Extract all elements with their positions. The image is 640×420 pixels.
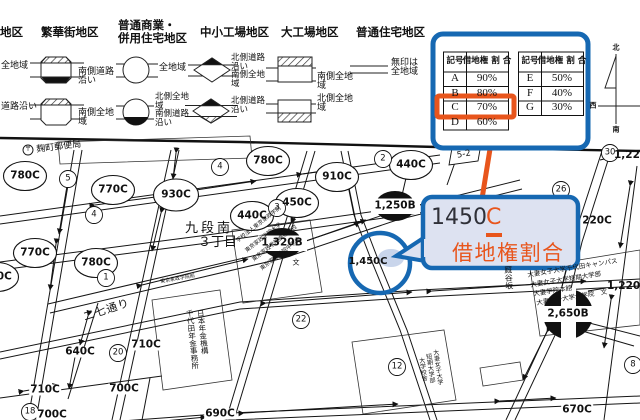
legend-title-residential: 普通住宅地区 (356, 26, 425, 38)
legend-label: 北側道路 沿い 南側全地 域 (231, 54, 265, 88)
road-value: 930C (161, 189, 191, 200)
legend-title-smallfactory: 中小工場地区 (200, 26, 269, 38)
block-number: 26 (556, 186, 567, 195)
block-number: 4 (91, 211, 96, 220)
road-value: 710C (130, 339, 162, 350)
table-cell: 80% (477, 88, 497, 100)
compass-north-label: 北 (613, 44, 620, 51)
rosenka-map-screenshot: 高度商業地区 全地域 道路沿い 繁華街地区 南側道路 沿い 南側全地 域 普通商… (0, 0, 640, 420)
road-value: 2,650B (547, 308, 588, 319)
road-value: 700C (108, 383, 140, 394)
legend-label: 北側道路 沿い (231, 97, 265, 114)
block-number: 8 (630, 361, 635, 370)
road-value: 440C (396, 159, 426, 170)
legend-label: 全地域 (159, 64, 186, 73)
block-number: 1 (103, 274, 108, 283)
table-header-ratio: 借地権 割 合 (538, 57, 586, 67)
table-cell: A (451, 73, 459, 85)
table-cell: 30% (552, 102, 572, 114)
compass-icon (598, 54, 640, 124)
legend-label: 道路沿い (1, 103, 37, 112)
block-number: 4 (217, 163, 222, 172)
block-number: 30 (605, 149, 616, 158)
table-cell: G (526, 102, 534, 114)
road-value: 670C (561, 404, 593, 415)
road-value: 770C (98, 184, 128, 195)
road-value: 780C (81, 257, 111, 268)
road-value: 1,250B (374, 200, 415, 211)
table-cell: D (451, 117, 459, 129)
table-cell: E (527, 73, 534, 85)
road-value: 640C (64, 346, 96, 357)
street-name-slope: 厩谷坂 (503, 265, 513, 290)
legend-label: 北側全地 域 南側道路 沿い (155, 93, 189, 127)
compass-west-label: 西 (590, 102, 597, 109)
block-number: 5 (65, 175, 70, 184)
post-symbol: 〒 (25, 147, 31, 153)
table-cell-highlighted: 70% (477, 102, 497, 114)
road-value: 710C (29, 384, 61, 395)
callout-label: 借地権割合 (452, 242, 565, 264)
legend-label: 南側全地 域 (317, 73, 353, 92)
legend-label: 無印は 全地域 (391, 59, 418, 78)
road-value: 450C (282, 197, 312, 208)
road-value-highlighted: 1,450C (349, 257, 388, 268)
table-header-symbol: 記号 (521, 57, 538, 67)
symbol-underline (486, 233, 502, 237)
table-cell: 60% (477, 117, 497, 129)
block-number: 18 (25, 408, 36, 417)
table-cell: F (527, 88, 533, 100)
block-number: 12 (392, 363, 403, 372)
table-cell: 90% (477, 73, 497, 85)
block-number: 20 (113, 349, 124, 358)
legend-title-commercial: 普通商業・ 併用住宅地区 (118, 19, 187, 45)
legend-label: 全地域 (1, 62, 28, 71)
road-value: 1,220C (614, 150, 640, 161)
road-value: 780C (10, 170, 40, 181)
district-name: 九段南 (185, 222, 233, 236)
road-value: 780C (253, 155, 283, 166)
legend-label: 北側全地 域 (317, 95, 353, 114)
table-cell-highlighted: C (451, 102, 458, 114)
table-header-ratio: 借地権 割 合 (463, 57, 511, 67)
legend-title-bigfactory: 大工場地区 (281, 26, 339, 38)
table-header-symbol: 記号 (446, 57, 463, 67)
road-value: 910C (322, 171, 352, 182)
block-number: 22 (296, 316, 307, 325)
legend-label: 南側道路 沿い (78, 68, 114, 87)
road-value: 220C (582, 215, 612, 226)
legend-label: 南側全地 域 (78, 109, 114, 128)
callout-symbol: C (486, 206, 501, 229)
callout-value: 1450 (431, 206, 487, 229)
road-value: 700C (36, 409, 68, 420)
road-value: 770C (20, 247, 50, 258)
road-value: 690C (204, 408, 236, 419)
road-value: 1,220C (607, 281, 640, 292)
table-cell: 40% (552, 88, 572, 100)
table-cell: B (451, 88, 458, 100)
legend-title-busystreet: 繁華街地区 (41, 26, 99, 38)
road-value: 700C (0, 271, 12, 282)
legend-title-highcommercial: 高度商業地区 (0, 26, 23, 38)
block-number: 2 (380, 155, 385, 164)
district-chome: ３丁目 (198, 236, 237, 250)
table-cell: 50% (552, 73, 572, 85)
school-map-symbol: 文 (293, 259, 300, 266)
compass-south-label: 南 (613, 126, 620, 133)
